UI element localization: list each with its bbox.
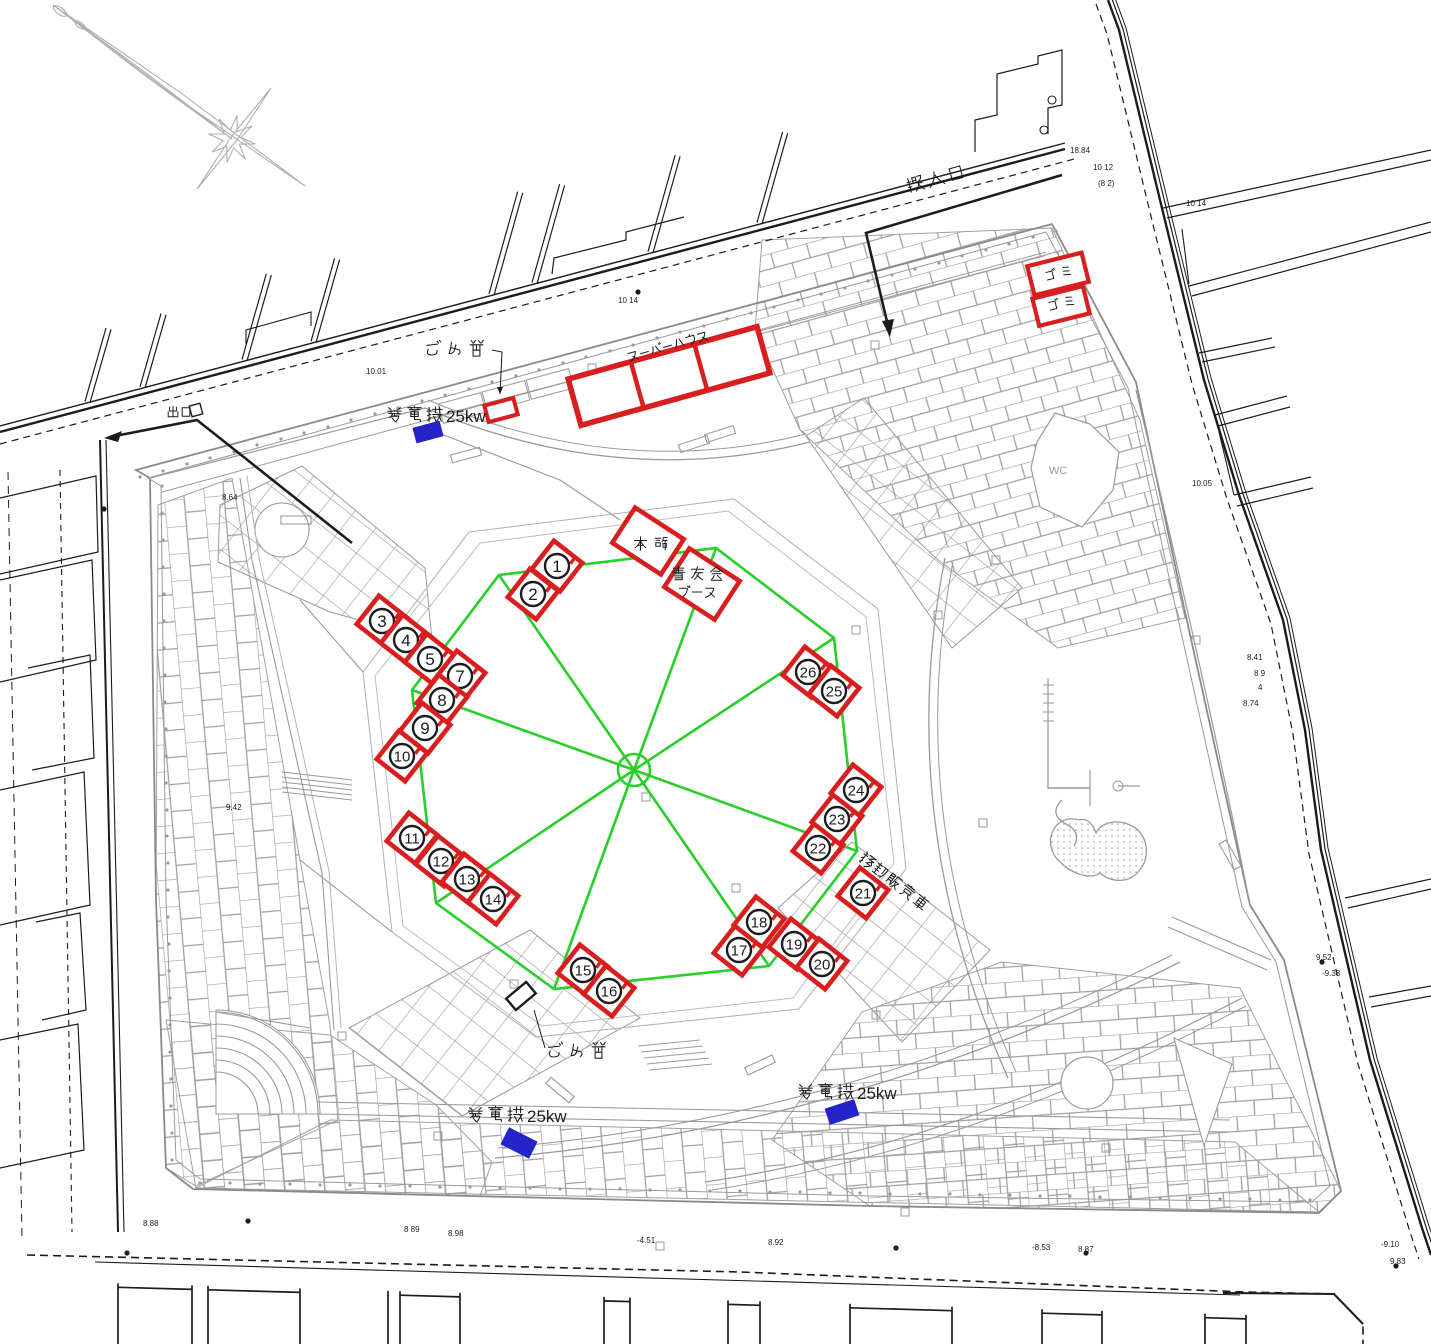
svg-text:8 89: 8 89: [404, 1225, 420, 1234]
svg-text:4: 4: [401, 631, 410, 650]
svg-text:10 14: 10 14: [1186, 199, 1207, 208]
svg-text:13: 13: [459, 871, 476, 888]
svg-text:8.88: 8.88: [143, 1219, 159, 1228]
svg-text:26: 26: [800, 664, 817, 681]
svg-text:15: 15: [575, 962, 592, 979]
svg-text:24: 24: [848, 782, 865, 799]
svg-text:18.84: 18.84: [1070, 146, 1091, 155]
svg-text:21: 21: [855, 885, 872, 902]
svg-text:20: 20: [814, 956, 831, 973]
svg-text:25kw: 25kw: [857, 1084, 897, 1103]
svg-text:-8.53: -8.53: [1032, 1243, 1051, 1252]
svg-text:-4.51: -4.51: [637, 1236, 656, 1245]
svg-text:2: 2: [528, 585, 537, 604]
svg-text:10: 10: [394, 748, 411, 765]
svg-text:10 12: 10 12: [1093, 163, 1114, 172]
svg-text:19: 19: [786, 936, 803, 953]
svg-text:9: 9: [420, 719, 429, 738]
svg-text:18: 18: [751, 914, 768, 931]
svg-text:25kw: 25kw: [446, 407, 486, 426]
svg-text:-9.10: -9.10: [1381, 1240, 1400, 1249]
svg-text:WC: WC: [1049, 465, 1067, 477]
svg-text:8.41: 8.41: [1247, 653, 1263, 662]
svg-text:-9.38: -9.38: [1322, 969, 1341, 978]
svg-text:7: 7: [455, 667, 464, 686]
svg-text:1: 1: [552, 557, 561, 576]
svg-text:22: 22: [810, 840, 827, 857]
svg-text:8 9: 8 9: [1254, 669, 1266, 678]
svg-text:10 14: 10 14: [618, 296, 639, 305]
svg-text:8.74: 8.74: [1243, 699, 1259, 708]
svg-text:12: 12: [433, 853, 450, 870]
svg-text:25: 25: [826, 683, 843, 700]
svg-text:16: 16: [601, 983, 618, 1000]
svg-text:(8 2): (8 2): [1098, 179, 1115, 188]
svg-text:8.92: 8.92: [768, 1238, 784, 1247]
svg-text:25kw: 25kw: [527, 1107, 567, 1126]
svg-text:10.01: 10.01: [366, 367, 387, 376]
svg-text:11: 11: [404, 830, 420, 847]
svg-text:23: 23: [829, 811, 846, 828]
svg-text:8.98: 8.98: [448, 1229, 464, 1238]
svg-text:9.42: 9.42: [226, 803, 242, 812]
svg-text:17: 17: [731, 942, 748, 959]
svg-text:8.64: 8.64: [222, 493, 238, 502]
svg-text:8: 8: [437, 691, 446, 710]
svg-text:10.05: 10.05: [1192, 479, 1213, 488]
svg-text:5: 5: [425, 650, 434, 669]
svg-text:14: 14: [485, 891, 502, 908]
svg-text:3: 3: [377, 612, 386, 631]
svg-text:4: 4: [1258, 683, 1263, 692]
